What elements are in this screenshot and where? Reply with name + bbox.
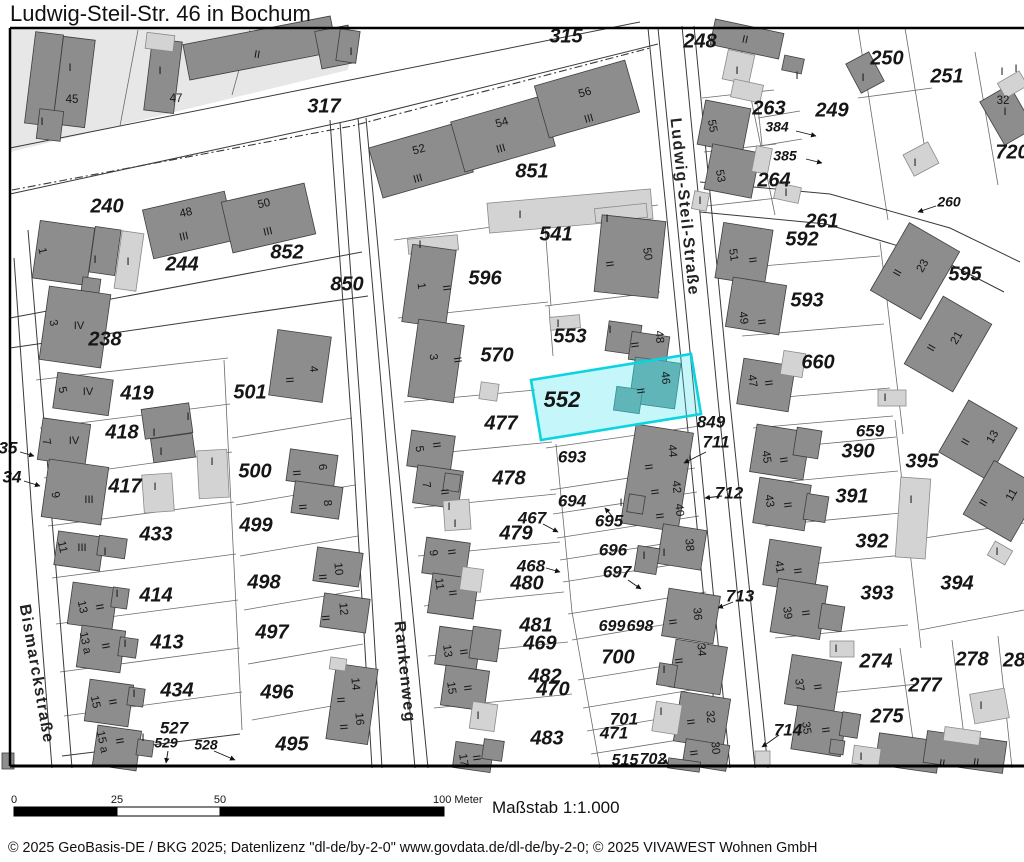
parcel-label: 495 [274, 733, 309, 755]
house-number: 39 [780, 606, 794, 620]
parcel-label: 660 [801, 351, 834, 373]
floor-count-label: II [334, 696, 346, 703]
scale-tick-label: 50 [214, 794, 226, 806]
leader-arrow [24, 481, 40, 486]
house-number: 46 [658, 371, 671, 385]
parcel-label: 263 [751, 97, 785, 119]
floor-count-label: I [158, 65, 161, 77]
building [118, 637, 138, 658]
page-title: Ludwig-Steil-Str. 46 in Bochum [10, 1, 311, 27]
building [662, 588, 721, 644]
floor-count-label: I [784, 187, 787, 199]
floor-count-label: I [642, 550, 645, 562]
parcel-label: 238 [87, 328, 122, 350]
floor-count-label: I [132, 688, 135, 700]
house-number: 42 [669, 480, 682, 494]
parcel-label: 240 [89, 195, 123, 217]
floor-count-label: I [186, 411, 189, 423]
street-name: Rankenweg [390, 620, 418, 724]
house-number: 45 [759, 450, 773, 464]
parcel-label: 414 [138, 584, 172, 606]
parcel-label: 417 [107, 475, 142, 497]
floor-count-label: I [979, 700, 982, 712]
floor-count-label: I [518, 209, 521, 221]
floor-count-label: I [995, 546, 998, 558]
floor-count-label: I [913, 157, 916, 169]
floor-count-label: I [883, 392, 886, 404]
parcel-label: 480 [509, 572, 543, 594]
parcel-label: 528 [194, 737, 218, 753]
parcel-label: 693 [558, 447, 587, 466]
parcel-boundary [920, 610, 1024, 630]
scale-bar-segment [220, 807, 444, 816]
parcel-label: 696 [599, 540, 628, 559]
parcel-label: 277 [907, 674, 942, 696]
building [793, 427, 822, 459]
parcel-label: 593 [790, 289, 823, 311]
house-number: 30 [708, 741, 721, 755]
parcel-label: 479 [498, 522, 533, 544]
building [469, 626, 501, 662]
parcel-label: 852 [270, 241, 303, 263]
floor-count-label: I [349, 46, 352, 58]
parcel-label: 261 [804, 210, 838, 232]
floor-count-label: I [1000, 66, 1003, 78]
leader-arrow [20, 452, 34, 456]
parcel-label: 570 [480, 344, 513, 366]
parcel-label: 419 [119, 382, 154, 404]
scale-text: Maßstab 1:1.000 [492, 798, 620, 818]
parcel-label: 278 [954, 648, 989, 670]
parcel-label: 274 [858, 650, 892, 672]
floor-count-label: I [698, 195, 701, 207]
building [895, 477, 931, 559]
scale-bar-segment [14, 807, 117, 816]
floor-count-label: I [859, 751, 862, 763]
cadastral-map: 3152482502513172632493843852647202402448… [0, 0, 1024, 862]
parcel-label: 552 [544, 387, 581, 412]
building [127, 687, 145, 707]
building [697, 100, 751, 153]
building [136, 739, 154, 757]
parcel-label: 385 [773, 148, 797, 164]
house-number: 12 [336, 602, 349, 616]
parcel-label: 470 [535, 678, 569, 700]
house-number: 53 [713, 169, 727, 184]
parcel-label: 713 [726, 586, 755, 605]
building [534, 60, 639, 138]
parcel-label: 471 [599, 723, 628, 742]
house-number: 44 [665, 444, 678, 458]
house-number: 45 [66, 94, 79, 106]
parcel-boundary [224, 360, 242, 730]
house-number: 37 [792, 678, 806, 692]
parcel-label: 477 [483, 412, 518, 434]
floor-count-label: IV [83, 386, 94, 398]
building [980, 85, 1024, 145]
parcel-label: 34 [3, 467, 22, 486]
house-number: 16 [352, 712, 365, 726]
parcel-label: 260 [936, 194, 961, 210]
parcel-label: 496 [259, 681, 294, 703]
floor-count-label: IV [74, 320, 85, 332]
building [970, 688, 1010, 724]
building [634, 545, 660, 574]
parcel-label: 700 [601, 646, 634, 668]
parcel-label: 393 [860, 582, 893, 604]
parcel-label: 850 [330, 273, 363, 295]
floor-count-label: II [451, 356, 464, 364]
parcel-label: 541 [539, 223, 572, 245]
house-number: 6 [316, 463, 329, 470]
building [782, 55, 805, 74]
floor-count-label: III [84, 494, 93, 506]
floor-count-label: I [605, 213, 608, 225]
parcel-label: 275 [869, 705, 904, 727]
parcel-label: 851 [515, 160, 548, 182]
floor-count-label: I [115, 588, 118, 600]
building [725, 277, 786, 335]
building [803, 493, 829, 522]
house-number: 11 [432, 577, 446, 591]
building [818, 603, 845, 631]
house-number: 32 [703, 710, 716, 724]
floor-count-label: II [296, 503, 308, 510]
parcel-label: 244 [164, 253, 198, 275]
floor-count-label: I [795, 70, 798, 82]
floor-count-label: I [210, 456, 213, 468]
building [479, 382, 499, 401]
parcel-label: 434 [159, 679, 193, 701]
floor-count-label: I [453, 518, 456, 530]
building [878, 390, 906, 406]
building [482, 739, 505, 762]
building [142, 473, 175, 513]
floor-count-label: I [152, 427, 155, 439]
house-number: 40 [672, 503, 685, 517]
house-number: 47 [745, 374, 759, 388]
parcel-boundary [858, 88, 932, 98]
floor-count-label: II [938, 758, 946, 771]
parcel-label: 251 [929, 65, 963, 87]
building [755, 751, 770, 766]
building [987, 541, 1012, 565]
parcel-label: 499 [238, 514, 273, 536]
leader-arrow [918, 206, 936, 212]
scale-bar-segment [117, 807, 220, 816]
building [627, 494, 646, 514]
building [903, 142, 939, 176]
building [141, 403, 193, 439]
house-number: 47 [170, 93, 183, 105]
floor-count-label: I [447, 501, 450, 513]
parcel-label: 596 [468, 267, 502, 289]
building [145, 32, 175, 51]
floor-count-label: I [93, 254, 96, 266]
building [829, 739, 845, 755]
house-number: 15 [444, 681, 458, 695]
parcel-label: 250 [869, 47, 903, 69]
building [715, 222, 773, 285]
building [291, 481, 343, 519]
floor-count-label: II [319, 614, 331, 621]
house-number: 35 [799, 721, 813, 735]
floor-count-label: I [662, 547, 665, 559]
floor-count-label: I [153, 481, 156, 493]
parcel-label: 469 [522, 632, 557, 654]
scale-tick-label: 0 [11, 794, 17, 806]
building [656, 663, 677, 688]
house-number: 34 [694, 643, 707, 657]
house-number: 13 [440, 644, 454, 658]
parcel-label: 497 [254, 621, 289, 643]
building [97, 535, 128, 559]
floor-count-label: I [126, 256, 129, 268]
parcel-label: 391 [835, 485, 868, 507]
parcel-label: 392 [855, 530, 888, 552]
building [673, 691, 730, 748]
floor-count-label: I [861, 72, 864, 84]
building [460, 567, 484, 593]
house-number: 36 [690, 607, 703, 621]
building [142, 191, 235, 259]
building [329, 657, 347, 671]
house-number: 41 [772, 560, 786, 574]
floor-count-label: III [77, 542, 86, 554]
parcel-label: 694 [558, 491, 587, 510]
parcel-label: 697 [603, 562, 633, 581]
parcel-label: 248 [682, 30, 717, 52]
parcel-label: 478 [491, 467, 526, 489]
building [469, 701, 498, 731]
building [594, 215, 666, 298]
parcel-label: 849 [697, 412, 726, 431]
parcel-label: 384 [765, 119, 789, 135]
parcel-label: 433 [138, 523, 172, 545]
floor-count-label: I [662, 664, 665, 676]
building [839, 712, 861, 739]
floor-count-label: I [40, 116, 43, 128]
leader-arrow [806, 159, 822, 163]
house-number: 49 [736, 311, 750, 325]
floor-count-label: I [659, 706, 662, 718]
building [111, 587, 130, 609]
house-number: 43 [762, 494, 776, 508]
floor-count-label: I [159, 446, 162, 458]
floor-count-label: I [103, 546, 106, 558]
parcel-label: 395 [905, 450, 939, 472]
scale-tick-label: 25 [111, 794, 123, 806]
floor-count-label: I [608, 324, 611, 336]
floor-count-label: I [1014, 63, 1017, 75]
scale-tick-label: 100 Meter [433, 794, 483, 806]
building [286, 449, 338, 487]
building [67, 582, 117, 630]
house-number: 38 [682, 538, 695, 552]
floor-count-label: I [123, 638, 126, 650]
parcel-label: 249 [814, 99, 849, 121]
parcel-label: 712 [715, 483, 744, 502]
parcel-label: 720 [995, 141, 1024, 163]
parcel-label: 28 [1002, 649, 1024, 671]
floor-count-label: I [476, 710, 479, 722]
building [770, 578, 828, 639]
parcel-label: 394 [940, 572, 973, 594]
house-number: 14 [348, 677, 361, 691]
floor-count-label: I [619, 497, 622, 509]
floor-count-label: I [834, 643, 837, 655]
parcel-label: 711 [702, 432, 729, 451]
house-number: 48 [652, 330, 665, 344]
floor-count-label: I [556, 318, 559, 330]
leader-arrow [166, 751, 168, 763]
street-name: Bismarckstraße [16, 603, 57, 745]
parcel-label: 317 [307, 95, 341, 117]
floor-count-label: I [68, 62, 71, 74]
parcel-label: 595 [948, 263, 982, 285]
house-number: 55 [705, 119, 719, 134]
parcel-label: 500 [238, 460, 271, 482]
building [652, 701, 682, 735]
parcel-label: 483 [529, 727, 563, 749]
house-number: 10 [331, 562, 344, 576]
house-number: 51 [726, 248, 740, 262]
parcel-label: 390 [841, 440, 874, 462]
building [269, 330, 332, 403]
leader-arrow [796, 131, 816, 136]
parcel-label: 501 [233, 381, 266, 403]
parcel-label: 529 [154, 735, 178, 751]
house-number: 11 [55, 540, 69, 554]
floor-count-label: I [1003, 106, 1006, 118]
house-number: 50 [640, 247, 654, 261]
floor-count-label: IV [69, 435, 80, 447]
parcel-label: 413 [149, 631, 183, 653]
leader-arrow [546, 568, 560, 572]
parcel-label: 498 [246, 571, 281, 593]
parcel-boundary [760, 139, 802, 146]
scale-bar: 02550100 Meter [11, 794, 483, 816]
floor-count-label: II [337, 723, 349, 730]
floor-count-label: II [290, 469, 302, 476]
building [336, 29, 360, 63]
house-number: 8 [321, 499, 334, 506]
floor-count-label: I [909, 494, 912, 506]
parcel-label: 418 [104, 421, 139, 443]
parcel-label: 659 [856, 421, 885, 440]
copyright: © 2025 GeoBasis-DE / BKG 2025; Datenlize… [8, 840, 817, 856]
parcel-boundary [706, 198, 778, 206]
parcel-label: 699 [599, 618, 626, 635]
building [852, 745, 881, 767]
parcel-label: 714 [774, 720, 803, 739]
parcel-label: 695 [595, 511, 624, 530]
floor-count-label: I [418, 239, 421, 251]
parcel-boundary [232, 418, 352, 438]
floor-count-label: I [735, 65, 738, 77]
floor-count-label: II [316, 573, 328, 580]
floor-count-label: I [141, 732, 144, 744]
parcel-label: 698 [627, 618, 654, 635]
floor-count-label: II [283, 376, 295, 383]
